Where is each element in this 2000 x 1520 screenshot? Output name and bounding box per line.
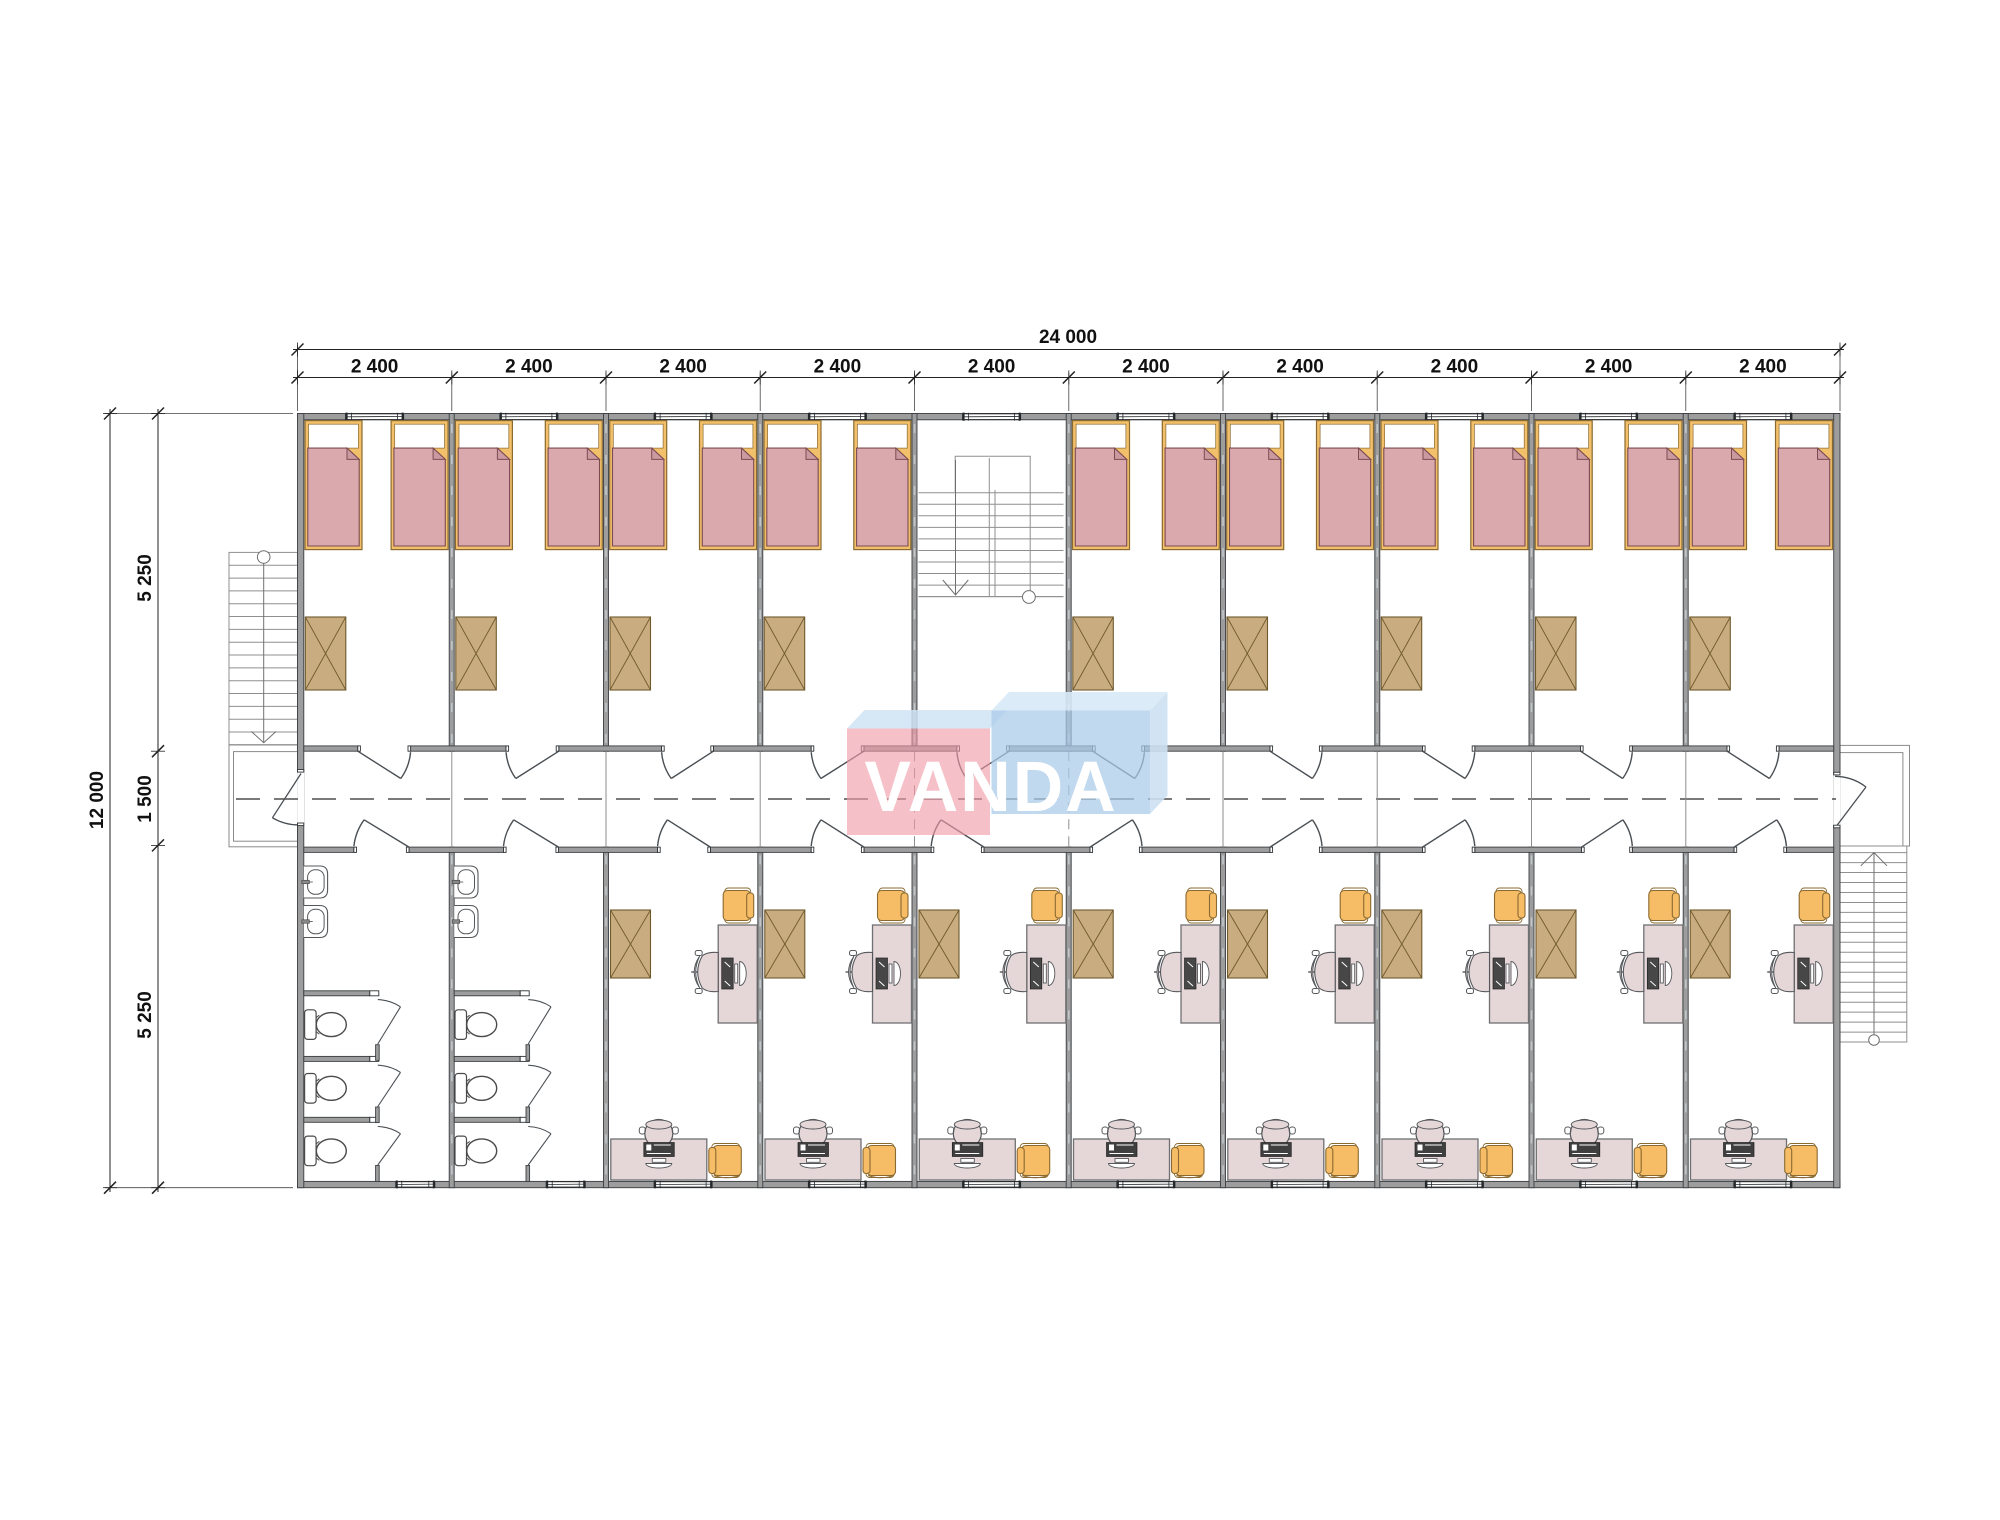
svg-text:5 250: 5 250 xyxy=(135,554,156,602)
svg-text:2 400: 2 400 xyxy=(814,357,862,378)
svg-text:2 400: 2 400 xyxy=(505,357,553,378)
svg-text:2 400: 2 400 xyxy=(1276,357,1324,378)
svg-text:2 400: 2 400 xyxy=(1431,357,1479,378)
svg-text:24 000: 24 000 xyxy=(1039,327,1097,348)
svg-text:2 400: 2 400 xyxy=(351,357,399,378)
svg-text:2 400: 2 400 xyxy=(1122,357,1170,378)
svg-text:2 400: 2 400 xyxy=(1739,357,1787,378)
svg-text:5 250: 5 250 xyxy=(135,991,156,1039)
svg-text:2 400: 2 400 xyxy=(659,357,707,378)
svg-text:2 400: 2 400 xyxy=(968,357,1016,378)
svg-text:12 000: 12 000 xyxy=(87,771,108,829)
svg-text:2 400: 2 400 xyxy=(1585,357,1633,378)
svg-text:1 500: 1 500 xyxy=(135,775,156,823)
svg-text:VANDA: VANDA xyxy=(864,747,1117,827)
